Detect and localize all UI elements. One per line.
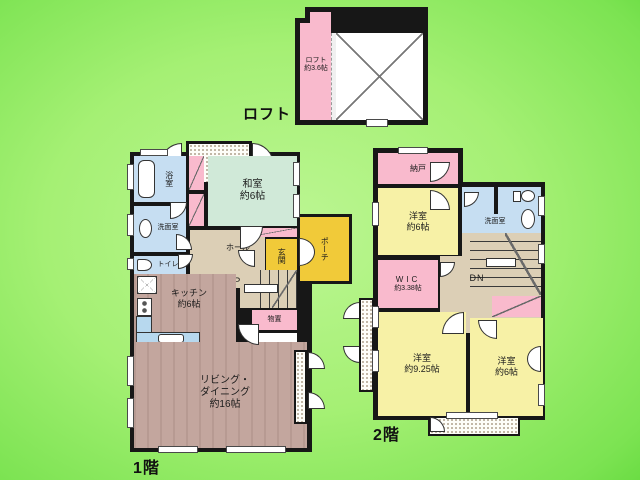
kitchen-size: 約6帖 — [177, 299, 200, 310]
living-dining-label: リビング・ ダイニング 約16帖 — [178, 372, 272, 414]
bathroom-top-window — [140, 149, 168, 156]
japanese-room-window2 — [293, 194, 300, 218]
west-room-a-size: 約6帖 — [406, 222, 429, 233]
floor2-caption: 2階 — [373, 421, 400, 445]
stairs-1f-rail — [244, 284, 278, 293]
living-window-left1 — [127, 356, 134, 386]
japanese-room-size: 約6帖 — [240, 191, 266, 203]
west-room-b-window2 — [372, 350, 379, 372]
stove-icon — [137, 298, 152, 316]
entrance: 玄関 — [266, 239, 297, 272]
toilet-icon — [137, 259, 152, 271]
west-room-c-size: 約6帖 — [495, 367, 518, 378]
toilet-window — [127, 258, 134, 270]
stairhall-window-right — [538, 244, 545, 264]
japanese-room-name: 和室 — [243, 179, 263, 191]
west-room-b-name: 洋室 — [413, 353, 431, 364]
side-terrace-1f — [294, 350, 307, 424]
floor1-caption: 1階 — [133, 454, 160, 478]
living-dining-size: 約16帖 — [209, 399, 240, 411]
balcony-left-door-upper — [343, 302, 360, 319]
closet-2f-right — [492, 296, 541, 317]
west-room-b-window1 — [372, 306, 379, 328]
storeroom-label: 納戸 — [410, 164, 426, 173]
west-room-c-name: 洋室 — [497, 356, 515, 367]
living-window-bottom1 — [158, 446, 198, 453]
west-room-a-window-left — [372, 202, 379, 226]
living-dining-line1: リビング・ — [200, 375, 250, 387]
loft-room-label: ロフト 約3.6帖 — [294, 52, 338, 78]
west-room-a-name: 洋室 — [409, 211, 427, 222]
stairs-2f-rail — [486, 258, 516, 267]
washroom-2f-partition — [494, 187, 498, 214]
kitchen-name: キッチン — [171, 288, 207, 299]
stairs-down-label: DN — [464, 272, 490, 284]
washroom-2f-label: 洗面室 — [475, 216, 515, 228]
loft-caption: ロフト — [243, 103, 291, 124]
japanese-room-window1 — [293, 162, 300, 186]
washroom-1f-window — [127, 214, 134, 236]
west-room-b-size: 約9.25帖 — [404, 364, 440, 375]
loft-room-name: ロフト — [306, 57, 327, 65]
living-terrace-door-lower — [308, 392, 325, 409]
living-window-bottom2 — [226, 446, 286, 453]
washroom-1f-label: 洗面室 — [151, 222, 185, 234]
bathroom-label: 浴室 — [162, 162, 176, 196]
basin-2f-icon — [521, 209, 535, 229]
balcony-left-door-lower — [343, 346, 360, 363]
living-dining-line2: ダイニング — [200, 387, 250, 399]
west-room-c-window-right — [538, 384, 545, 406]
entrance-label: 玄関 — [277, 248, 286, 264]
loft-window — [366, 119, 388, 127]
bathtub-icon — [138, 160, 155, 198]
loft-void-area — [336, 33, 423, 120]
japanese-room: 和室 約6帖 — [208, 156, 297, 226]
closet-upper-1f — [189, 156, 204, 190]
wic-name: WIC — [396, 275, 421, 284]
bathroom-window — [127, 164, 134, 190]
west-room-c-window-bottom — [446, 412, 498, 419]
refrigerator-icon — [137, 276, 157, 294]
loft-room-size: 約3.6帖 — [304, 65, 328, 73]
toilet-2f-bowl — [521, 190, 535, 202]
floor-plan-canvas: ロフト 約3.6帖 ロフト 浴室 和室 約6帖 洗面室 トイレ ホール 玄関 ポ… — [0, 0, 640, 480]
toilet-2f-tank — [513, 191, 521, 202]
washroom-2f-window-right — [538, 196, 545, 216]
storage-1f-label: 物置 — [268, 316, 282, 324]
living-window-left2 — [127, 398, 134, 428]
kitchen-label: キッチン 約6帖 — [156, 286, 222, 312]
closet-lower-1f — [189, 194, 204, 226]
wic-size: 約3.38帖 — [394, 285, 422, 293]
living-terrace-door-upper — [308, 352, 325, 369]
wic: WIC 約3.38帖 — [378, 260, 438, 308]
storeroom-top-window — [398, 147, 428, 154]
porch-label: ポーチ — [320, 237, 329, 261]
